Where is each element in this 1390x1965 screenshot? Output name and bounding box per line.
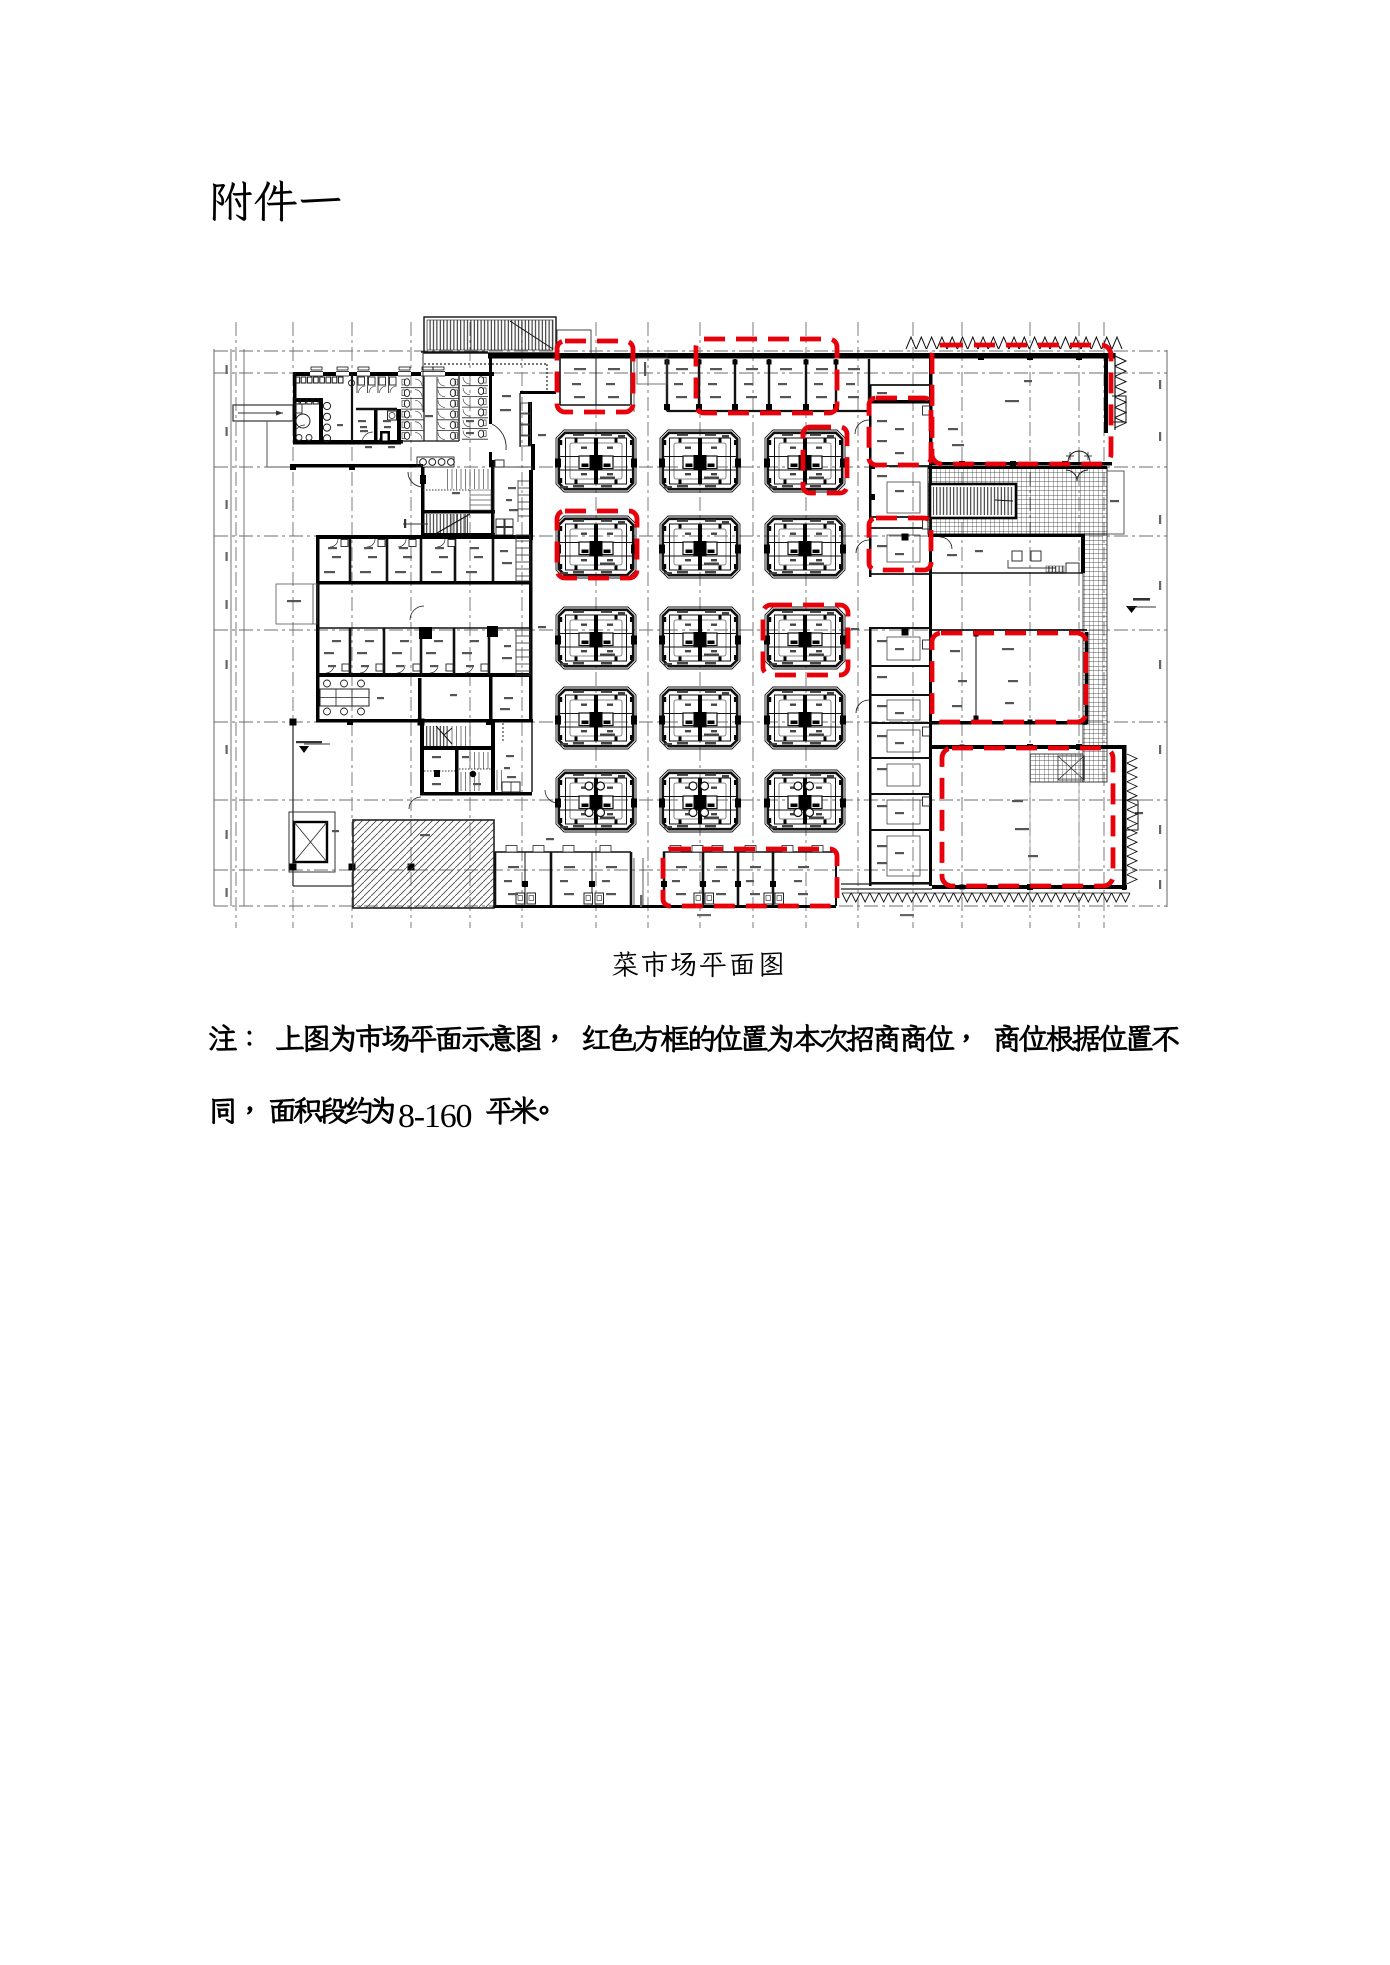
svg-text:8-160: 8-160 — [398, 1098, 472, 1135]
